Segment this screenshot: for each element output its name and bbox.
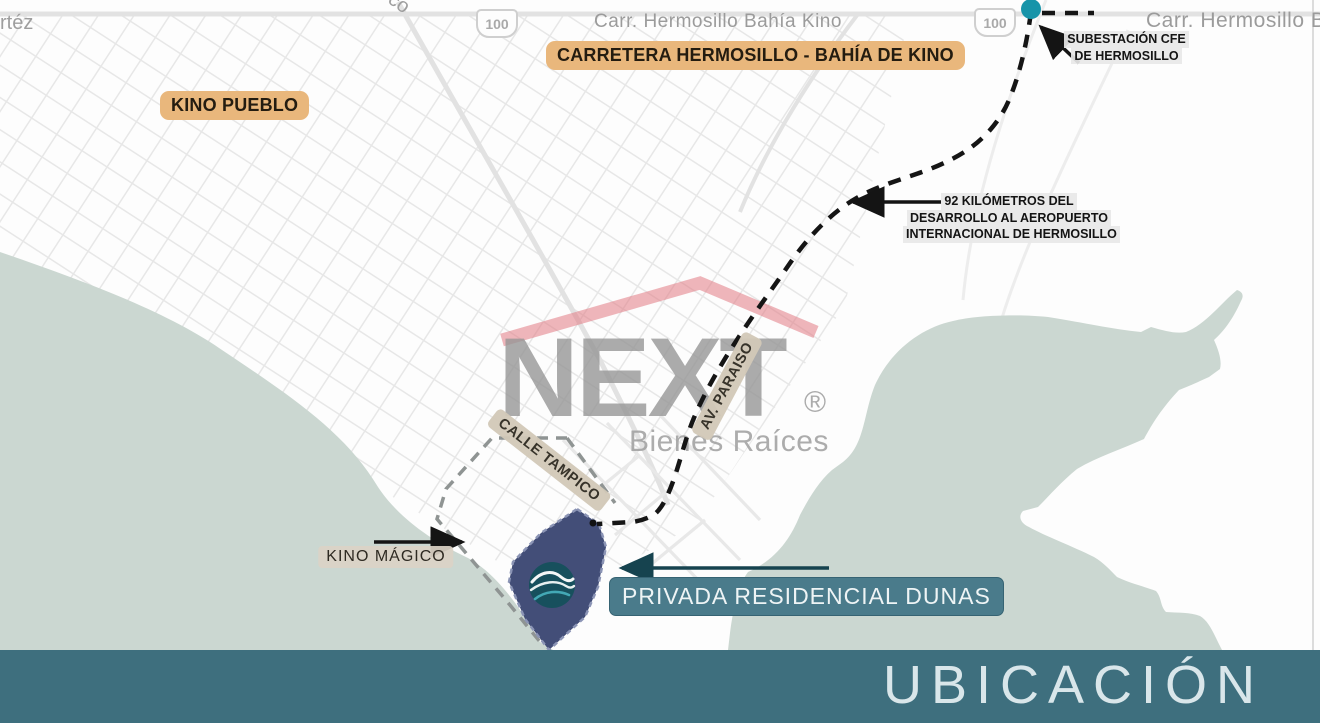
top-road-label: Carr. Hermosillo Bahía Kino xyxy=(594,11,842,33)
substation-note-line2: DE HERMOSILLO xyxy=(1071,48,1181,65)
carretera-banner: CARRETERA HERMOSILLO - BAHÍA DE KINO xyxy=(546,41,965,70)
highway-shield-icon: 100 xyxy=(476,9,518,38)
highway-shield-icon: 100 xyxy=(974,8,1016,37)
substation-note: SUBESTACIÓN CFE DE HERMOSILLO xyxy=(1064,31,1189,64)
dunas-logo-icon xyxy=(529,562,575,608)
distance-note-line2: DESARROLLO AL AEROPUERTO xyxy=(907,210,1111,227)
route-end-dot xyxy=(590,520,597,527)
substation-note-line1: SUBESTACIÓN CFE xyxy=(1064,31,1189,48)
distance-note: 92 KILÓMETROS DEL DESARROLLO AL AEROPUER… xyxy=(903,193,1115,243)
distance-note-line1: 92 KILÓMETROS DEL xyxy=(941,193,1076,210)
watermark-tagline: Bienes Raíces xyxy=(629,425,829,458)
distance-note-line3: INTERNACIONAL DE HERMOSILLO xyxy=(903,226,1120,243)
registered-mark-icon: ® xyxy=(804,386,826,419)
site-banner: PRIVADA RESIDENCIAL DUNAS xyxy=(609,577,1004,616)
footer-bar: UBICACIÓN xyxy=(0,650,1320,723)
map-edge-line xyxy=(1312,0,1314,650)
top-road-label-right: Carr. Hermosillo Ba xyxy=(1146,9,1320,33)
page-title: UBICACIÓN xyxy=(883,650,1264,720)
kino-pueblo-label: KINO PUEBLO xyxy=(160,91,309,120)
location-map: NEXT ® Bienes Raíces rtéz co Carr. xyxy=(0,0,1320,723)
edge-label-cortez: rtéz xyxy=(0,12,33,35)
kino-magico-label: KINO MÁGICO xyxy=(318,546,453,568)
